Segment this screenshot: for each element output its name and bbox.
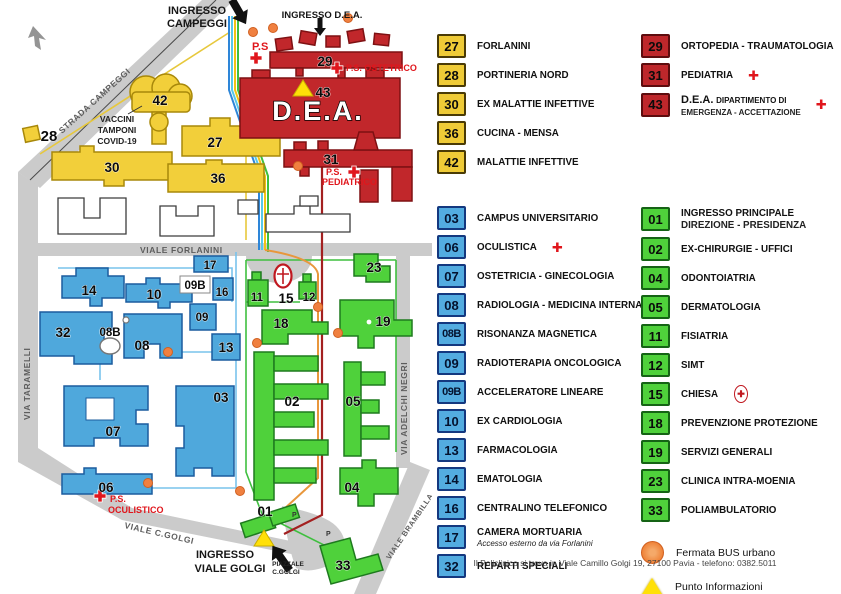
entrance-campeggi-label2: CAMPEGGI xyxy=(167,18,227,30)
building-08 xyxy=(124,314,182,358)
legend-number-badge: 05 xyxy=(641,295,670,319)
ps-pediatrico-label2: PEDIATRICO xyxy=(322,177,377,187)
legend-item: 23CLINICA INTRA-MOENIA xyxy=(641,469,818,493)
legend-label: RADIOTERAPIA ONCOLOGICA xyxy=(477,356,621,370)
legend-item: 06OCULISTICA✚ xyxy=(437,235,642,259)
bnum-09: 09 xyxy=(196,312,209,324)
ps-oculistico-label: P.S. xyxy=(110,494,126,504)
legend-item: 18PREVENZIONE PROTEZIONE xyxy=(641,411,818,435)
bnum-23: 23 xyxy=(366,260,382,275)
legend-item: 02EX-CHIRURGIE - UFFICI xyxy=(641,237,818,261)
legend-item: 01INGRESSO PRINCIPALEDIREZIONE - PRESIDE… xyxy=(641,206,818,232)
white-buildings xyxy=(58,196,350,236)
legend-item: 09RADIOTERAPIA ONCOLOGICA xyxy=(437,351,642,375)
bnum-11: 11 xyxy=(251,292,264,304)
legend-column-blue: 03CAMPUS UNIVERSITARIO 06OCULISTICA✚ 07O… xyxy=(437,206,642,583)
vaccini-note2: TAMPONI xyxy=(98,125,137,135)
info-symbol-label: Punto Informazioni xyxy=(675,581,763,593)
legend-number-badge: 23 xyxy=(641,469,670,493)
legend-number-badge: 12 xyxy=(641,353,670,377)
bnum-05: 05 xyxy=(345,394,361,409)
bnum-02: 02 xyxy=(284,394,299,409)
legend-item: 30EX MALATTIE INFETTIVE xyxy=(437,92,594,116)
legend-label: EX CARDIOLOGIA xyxy=(477,414,562,428)
legend-number-badge: 33 xyxy=(641,498,670,522)
legend-item: 14EMATOLOGIA xyxy=(437,467,642,491)
ps-pediatrico-label: P.S. xyxy=(326,167,342,177)
bnum-01: 01 xyxy=(257,504,273,519)
legend-number-badge: 07 xyxy=(437,264,466,288)
red-cross-icon: ✚ xyxy=(552,241,563,254)
legend-label: EMATOLOGIA xyxy=(477,472,543,486)
legend-item: 08BRISONANZA MAGNETICA xyxy=(437,322,642,346)
road-label-via-taramelli: VIA TARAMELLI xyxy=(22,348,32,421)
legend-item: 12SIMT xyxy=(641,353,818,377)
legend-number-badge: 06 xyxy=(437,235,466,259)
legend-number-badge: 03 xyxy=(437,206,466,230)
parking-label: P xyxy=(326,531,331,538)
legend-label: D.E.A. DIPARTIMENTO DIEMERGENZA - ACCETT… xyxy=(681,92,801,118)
entrance-golgi-label: INGRESSO xyxy=(196,549,255,561)
road-label-via-adelchi-negri: VIA ADELCHI NEGRI xyxy=(399,362,409,455)
church-icon: ✚ xyxy=(734,385,748,403)
bnum-16: 16 xyxy=(216,287,229,299)
legend-label: POLIAMBULATORIO xyxy=(681,503,776,517)
red-cross-icon: ✚ xyxy=(748,69,759,82)
legend-label: ODONTOIATRIA xyxy=(681,271,756,285)
legend-number-badge: 15 xyxy=(641,382,670,406)
legend-label: ORTOPEDIA - TRAUMATOLOGIA xyxy=(681,39,834,53)
legend-label: PEDIATRIA xyxy=(681,68,733,82)
legend-number-badge: 02 xyxy=(641,237,670,261)
legend-number-badge: 13 xyxy=(437,438,466,462)
legend-number-badge: 01 xyxy=(641,207,670,231)
ps-ostetrico-label: P.S. OSTETRICO xyxy=(346,63,417,73)
legend-number-badge: 30 xyxy=(437,92,466,116)
red-cross-icon: ✚ xyxy=(816,98,827,111)
legend-item: 15CHIESA✚ xyxy=(641,382,818,406)
building-05 xyxy=(344,362,389,456)
legend-label: FISIATRIA xyxy=(681,329,728,343)
vaccini-note: VACCINI xyxy=(100,114,134,124)
bnum-08b: 08B xyxy=(99,327,120,339)
legend-label: FARMACOLOGIA xyxy=(477,443,558,457)
legend-label: CAMERA MORTUARIAAccesso esterno da via F… xyxy=(477,525,593,549)
legend-item: 33POLIAMBULATORIO xyxy=(641,498,818,522)
bnum-03: 03 xyxy=(213,390,229,405)
legend-info-symbol: Punto Informazioni xyxy=(641,578,818,594)
legend-label: FORLANINI xyxy=(477,39,530,53)
bnum-15: 15 xyxy=(278,291,294,306)
legend-item: 13FARMACOLOGIA xyxy=(437,438,642,462)
bnum-33: 33 xyxy=(335,558,351,573)
legend-label: OCULISTICA xyxy=(477,240,537,254)
legend-item: 09BACCELERATORE LINEARE xyxy=(437,380,642,404)
legend-label: SIMT xyxy=(681,358,704,372)
entrance-golgi-label2: VIALE GOLGI xyxy=(195,563,266,575)
legend-number-badge: 43 xyxy=(641,93,670,117)
legend-label: CHIESA xyxy=(681,387,718,401)
legend-item: 19SERVIZI GENERALI xyxy=(641,440,818,464)
bnum-06: 06 xyxy=(98,480,114,495)
legend-item: 08RADIOLOGIA - MEDICINA INTERNA xyxy=(437,293,642,317)
dea-big-label: D.E.A. xyxy=(272,96,364,126)
legend-label: INGRESSO PRINCIPALEDIREZIONE - PRESIDENZ… xyxy=(681,206,806,232)
legend-item: 04ODONTOIATRIA xyxy=(641,266,818,290)
legend-label: PREVENZIONE PROTEZIONE xyxy=(681,416,818,430)
legend-item: 11FISIATRIA xyxy=(641,324,818,348)
legend-number-badge: 19 xyxy=(641,440,670,464)
legend-number-badge: 17 xyxy=(437,525,466,549)
legend-label: RADIOLOGIA - MEDICINA INTERNA xyxy=(477,298,642,312)
north-arrow-icon xyxy=(28,26,46,50)
legend-number-badge: 27 xyxy=(437,34,466,58)
legend-item: 31PEDIATRIA✚ xyxy=(641,63,834,87)
legend-item: 07OSTETRICIA - GINECOLOGIA xyxy=(437,264,642,288)
ps-cross-icon xyxy=(250,52,262,64)
bnum-30: 30 xyxy=(104,160,119,175)
legend-number-badge: 04 xyxy=(641,266,670,290)
entrance-dea-label: INGRESSO D.E.A. xyxy=(282,10,363,21)
building-15-church xyxy=(275,265,292,288)
bnum-08: 08 xyxy=(134,338,150,353)
entrance-campeggi-label: INGRESSO xyxy=(168,5,227,17)
legend-column-green: 01INGRESSO PRINCIPALEDIREZIONE - PRESIDE… xyxy=(641,206,818,594)
legend-item: 36CUCINA - MENSA xyxy=(437,121,594,145)
bnum-13: 13 xyxy=(218,340,234,355)
building-31 xyxy=(284,132,412,202)
bnum-17: 17 xyxy=(204,260,217,272)
bnum-07: 07 xyxy=(105,424,120,439)
bnum-43: 43 xyxy=(315,85,331,100)
legend-label: ACCELERATORE LINEARE xyxy=(477,385,603,399)
address-footer: Il Policlinico si trova in Viale Camillo… xyxy=(425,558,825,568)
piazzale-label: PIAZZALE xyxy=(272,561,304,568)
legend-item: 42MALATTIE INFETTIVE xyxy=(437,150,594,174)
legend-item: 10EX CARDIOLOGIA xyxy=(437,409,642,433)
legend-item: 28PORTINERIA NORD xyxy=(437,63,594,87)
ps-label: P.S xyxy=(252,41,268,53)
legend-number-badge: 29 xyxy=(641,34,670,58)
legend-label: CAMPUS UNIVERSITARIO xyxy=(477,211,598,225)
legend-label: DERMATOLOGIA xyxy=(681,300,761,314)
bnum-28: 28 xyxy=(41,128,58,145)
legend-number-badge: 10 xyxy=(437,409,466,433)
legend-number-badge: 31 xyxy=(641,63,670,87)
legend-number-badge: 42 xyxy=(437,150,466,174)
legend-item: 16CENTRALINO TELEFONICO xyxy=(437,496,642,520)
vaccini-note3: COVID-19 xyxy=(97,136,136,146)
legend-label: SERVIZI GENERALI xyxy=(681,445,772,459)
bnum-04: 04 xyxy=(344,480,360,495)
piazzale-label2: C.GOLGI xyxy=(272,569,300,576)
legend-number-badge: 08B xyxy=(437,322,466,346)
legend: 27FORLANINI 28PORTINERIA NORD 30EX MALAT… xyxy=(425,0,841,594)
legend-label: PORTINERIA NORD xyxy=(477,68,569,82)
building-28 xyxy=(23,125,41,142)
campus-map: STRADA CAMPEGGI VIA TARAMELLI VIALE FORL… xyxy=(0,0,432,594)
legend-number-badge: 11 xyxy=(641,324,670,348)
legend-column-yellow: 27FORLANINI 28PORTINERIA NORD 30EX MALAT… xyxy=(437,34,594,179)
legend-number-badge: 18 xyxy=(641,411,670,435)
bnum-32: 32 xyxy=(55,325,70,340)
legend-item: 03CAMPUS UNIVERSITARIO xyxy=(437,206,642,230)
bnum-36: 36 xyxy=(210,171,226,186)
legend-number-badge: 08 xyxy=(437,293,466,317)
legend-item: 27FORLANINI xyxy=(437,34,594,58)
bnum-29: 29 xyxy=(317,54,332,69)
bnum-42: 42 xyxy=(152,93,167,108)
legend-number-badge: 28 xyxy=(437,63,466,87)
road-label-viale-forlanini: VIALE FORLANINI xyxy=(140,245,223,255)
bnum-31: 31 xyxy=(323,152,339,167)
legend-number-badge: 09B xyxy=(437,380,466,404)
legend-label: RISONANZA MAGNETICA xyxy=(477,327,597,341)
legend-column-red: 29ORTOPEDIA - TRAUMATOLOGIA 31PEDIATRIA✚… xyxy=(641,34,834,123)
legend-item: 43 D.E.A. DIPARTIMENTO DIEMERGENZA - ACC… xyxy=(641,92,834,118)
bnum-18: 18 xyxy=(273,316,289,331)
legend-item: 17CAMERA MORTUARIAAccesso esterno da via… xyxy=(437,525,642,549)
legend-label: EX MALATTIE INFETTIVE xyxy=(477,97,594,111)
legend-label: CENTRALINO TELEFONICO xyxy=(477,501,607,515)
legend-number-badge: 36 xyxy=(437,121,466,145)
legend-number-badge: 16 xyxy=(437,496,466,520)
legend-item: 29ORTOPEDIA - TRAUMATOLOGIA xyxy=(641,34,834,58)
bnum-14: 14 xyxy=(81,283,97,298)
legend-label: CUCINA - MENSA xyxy=(477,126,559,140)
legend-label: OSTETRICIA - GINECOLOGIA xyxy=(477,269,614,283)
bnum-27: 27 xyxy=(207,135,222,150)
parking-label: P xyxy=(292,512,297,519)
legend-item: 05DERMATOLOGIA xyxy=(641,295,818,319)
legend-label: EX-CHIRURGIE - UFFICI xyxy=(681,242,793,256)
hospital-campus-map-page: STRADA CAMPEGGI VIA TARAMELLI VIALE FORL… xyxy=(0,0,841,594)
bnum-09b: 09B xyxy=(184,280,205,292)
legend-label: MALATTIE INFETTIVE xyxy=(477,155,579,169)
bnum-10: 10 xyxy=(146,287,161,302)
legend-number-badge: 14 xyxy=(437,467,466,491)
ps-oculistico-label2: OCULISTICO xyxy=(108,505,164,515)
bnum-12: 12 xyxy=(303,292,316,304)
bnum-19: 19 xyxy=(375,314,390,329)
legend-label: CLINICA INTRA-MOENIA xyxy=(681,474,795,488)
info-point-icon xyxy=(641,578,663,594)
legend-number-badge: 09 xyxy=(437,351,466,375)
